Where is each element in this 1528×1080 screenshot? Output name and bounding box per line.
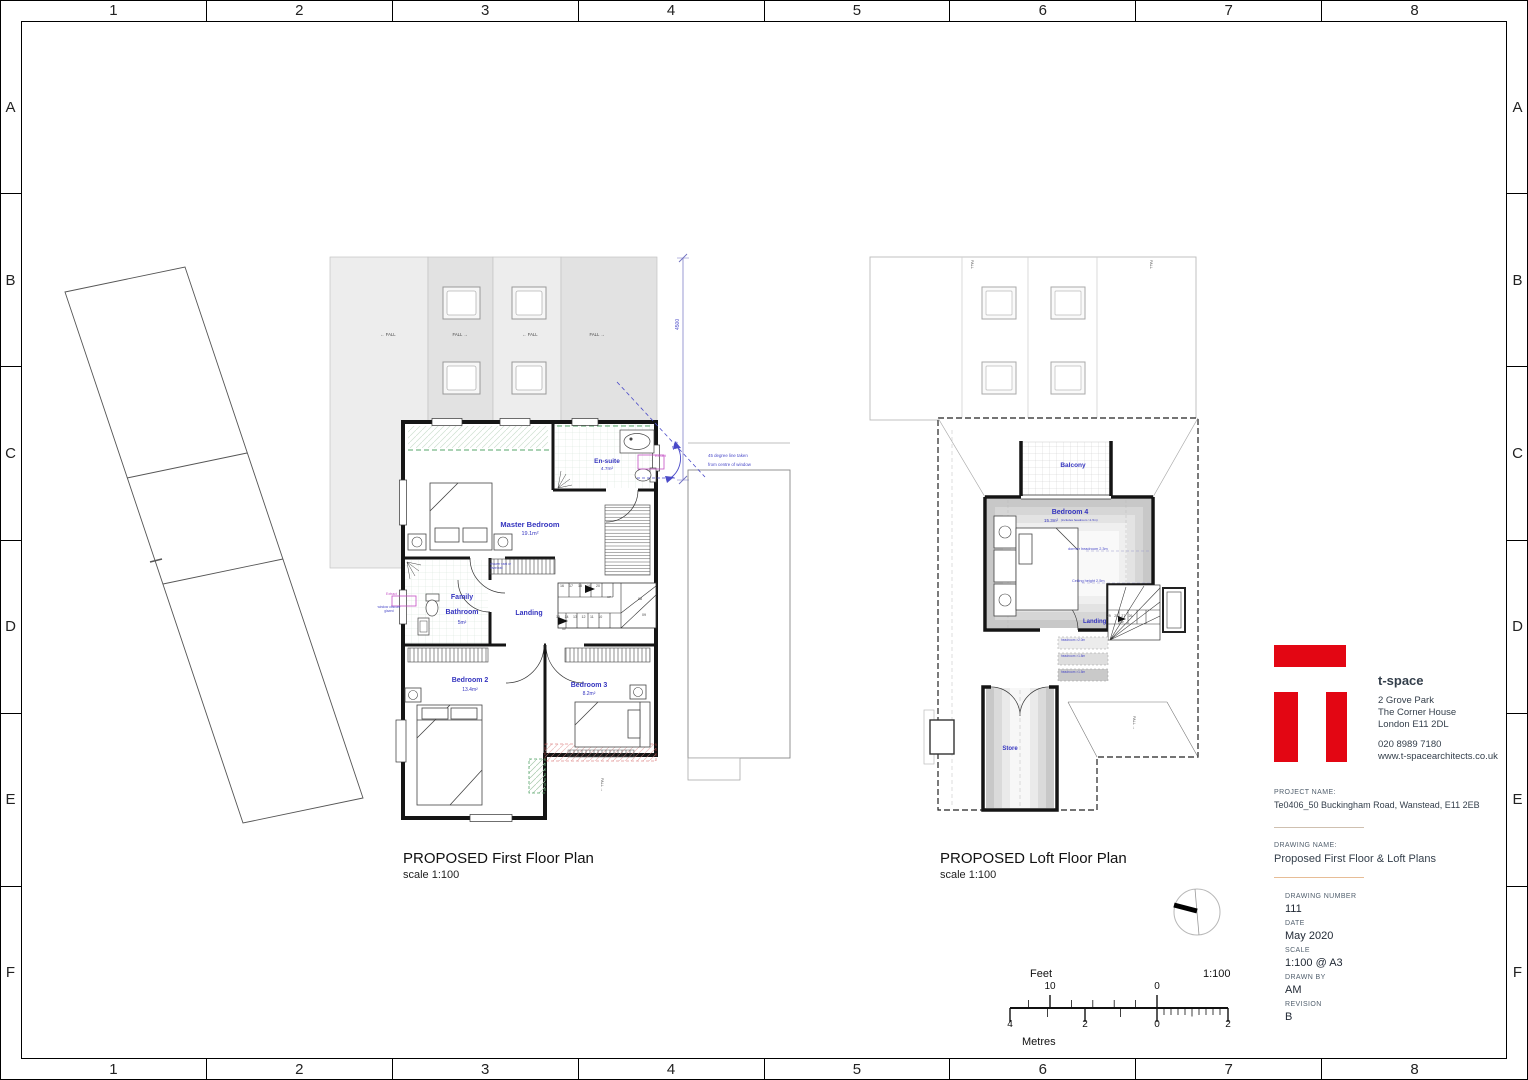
first-floor-plan-title: PROPOSED First Floor Plan: [403, 850, 594, 867]
drawing-number-label: DRAWING NUMBER: [1285, 893, 1356, 901]
room-label-bedroom3: Bedroom 3: [571, 682, 608, 690]
roof-fall-label: FALL →: [1132, 716, 1136, 730]
loft-plan-scale: scale 1:100: [940, 869, 996, 882]
grid-row-label: B: [0, 194, 21, 367]
stair-winder-number: 09: [642, 613, 646, 617]
grid-band-bottom: 1 2 3 4 5 6 7 8: [21, 1059, 1507, 1080]
dormer-headroom-note: dormer headroom 2.3m: [1068, 547, 1108, 551]
address-line: London E11 2DL: [1378, 720, 1449, 731]
revision-value: B: [1285, 1011, 1292, 1024]
grid-row-label: E: [1507, 714, 1528, 887]
grid-band-left: A B C D E F: [0, 21, 21, 1059]
roof-fall-label: ← FALL: [522, 333, 537, 338]
brand-name: t-space: [1378, 674, 1424, 689]
first-floor-plan-scale: scale 1:100: [403, 869, 459, 882]
chimney: [930, 720, 954, 754]
roof-fall-label: FALL →: [590, 333, 605, 338]
phone-number: 020 8989 7180: [1378, 740, 1441, 751]
drawn-by-label: DRAWN BY: [1285, 974, 1326, 982]
grid-row-label: A: [1507, 21, 1528, 194]
grid-row-label: A: [0, 21, 21, 194]
scalebar-m-4: 4: [1007, 1019, 1013, 1031]
grid-col-label: 6: [950, 1059, 1136, 1080]
room-label-balcony: Balcony: [1060, 462, 1085, 469]
scalebar-m-2l: 2: [1082, 1019, 1088, 1031]
angle-note-line1: 45 degree line taken: [708, 453, 748, 458]
grid-row-label: B: [1507, 194, 1528, 367]
roof-fall-label: FALL: [1149, 260, 1153, 269]
grid-col-label: 3: [393, 0, 579, 21]
scalebar-feet-label: Feet: [1030, 968, 1052, 981]
loft-plan-title: PROPOSED Loft Floor Plan: [940, 850, 1127, 867]
grid-col-label: 4: [579, 0, 765, 21]
project-name-value: Te0406_50 Buckingham Road, Wanstead, E11…: [1274, 800, 1480, 810]
stair-tread-numbers-lower: 15 14 13 12 11 10: [556, 615, 602, 619]
scale-label: SCALE: [1285, 947, 1310, 955]
headroom-note-2: headroom >1.8m: [1061, 655, 1085, 659]
grid-col-label: 6: [950, 0, 1136, 21]
loft-staircase: [1108, 585, 1160, 640]
room-area-master: 19.1m²: [521, 531, 538, 537]
grid-col-label: 3: [393, 1059, 579, 1080]
roof-fall-label: FALL →: [453, 333, 468, 338]
room-label-bedroom4: Bedroom 4: [1052, 509, 1089, 517]
extract-note: Extract: [386, 592, 397, 596]
loft-stair-tread-numbers: 29 28 27 26: [1107, 615, 1132, 619]
grid-col-label: 2: [207, 1059, 393, 1080]
loft-plan-drawing: [860, 250, 1210, 830]
grid-row-label: F: [0, 887, 21, 1059]
grid-col-label: 7: [1136, 0, 1322, 21]
dimension-text: 4500: [676, 319, 682, 330]
website-link[interactable]: www.t-spacearchitects.co.uk: [1378, 752, 1498, 763]
grid-col-label: 7: [1136, 1059, 1322, 1080]
north-point: [1170, 885, 1224, 939]
headroom-note-1: headroom >2.0m: [1061, 639, 1085, 643]
grid-row-label: E: [0, 714, 21, 887]
stair-up-label: UP: [1120, 621, 1124, 624]
date-label: DATE: [1285, 920, 1305, 928]
grid-col-label: 4: [579, 1059, 765, 1080]
divider: [1274, 877, 1364, 878]
angle-note-line2: from centre of window: [708, 462, 751, 467]
room-label-ensuite: En-suite: [594, 458, 620, 465]
grid-band-top: 1 2 3 4 5 6 7 8: [21, 0, 1507, 21]
extract-note: Extract: [655, 454, 666, 458]
divider: [1274, 827, 1364, 828]
stair-winder-number: 08: [638, 597, 642, 601]
roof-fall-label: FALL: [970, 260, 974, 269]
room-area-bedroom4: 15.3m²: [1044, 518, 1058, 523]
room-area-bedroom3: 8.2m²: [583, 692, 596, 698]
room-label-loft-landing: Landing: [1083, 619, 1106, 626]
revision-label: REVISION: [1285, 1001, 1322, 1009]
shower-note: shower seat or towel rail: [490, 563, 514, 570]
scale-value: 1:100 @ A3: [1285, 957, 1343, 970]
grid-row-label: D: [0, 541, 21, 714]
roof-fall-label: FALL →: [600, 778, 604, 792]
project-name-label: PROJECT NAME:: [1274, 789, 1336, 797]
loft-roof-outline: [870, 257, 1196, 420]
stair-tread-numbers-upper: 16 17 18 19 20: [560, 584, 600, 588]
ceiling-height-note: Ceiling height 2.5m: [1072, 579, 1105, 583]
room-label-master: Master Bedroom: [500, 521, 559, 530]
date-value: May 2020: [1285, 930, 1333, 943]
room-area-note-bedroom4: (includes headroom >1.5m): [1061, 519, 1098, 522]
grid-col-label: 5: [765, 0, 951, 21]
drawing-name-value: Proposed First Floor & Loft Plans: [1274, 853, 1436, 866]
scale-bar: [1000, 990, 1240, 1040]
room-label-store: Store: [1002, 746, 1017, 753]
roof-fall-label: ← FALL: [380, 333, 395, 338]
store-room: [983, 687, 1057, 810]
grid-col-label: 8: [1322, 0, 1507, 21]
scalebar-feet-10: 10: [1044, 981, 1055, 993]
address-line: The Corner House: [1378, 708, 1456, 719]
grid-row-label: F: [1507, 887, 1528, 1059]
room-label-landing: Landing: [515, 610, 542, 618]
drawn-by-value: AM: [1285, 984, 1302, 997]
room-area-bathroom: 5m²: [458, 621, 467, 627]
scalebar-ratio: 1:100: [1203, 968, 1231, 981]
drawing-name-label: DRAWING NAME:: [1274, 842, 1337, 850]
room-label-bedroom2: Bedroom 2: [452, 677, 489, 685]
drawing-number-value: 111: [1285, 903, 1302, 916]
headroom-note-3: headroom >1.5m: [1061, 671, 1085, 675]
grid-col-label: 1: [21, 1059, 207, 1080]
scalebar-m-0: 0: [1154, 1019, 1160, 1031]
staircase: [558, 583, 656, 628]
grid-col-label: 2: [207, 0, 393, 21]
grid-row-label: C: [0, 367, 21, 540]
address-line: 2 Grove Park: [1378, 696, 1434, 707]
stair-up-label: UP: [607, 596, 611, 599]
stair-up-label: UP: [562, 628, 566, 631]
grid-row-label: D: [1507, 541, 1528, 714]
drawing-sheet: 1 2 3 4 5 6 7 8 1 2 3 4 5 6 7 8 A B C D …: [0, 0, 1528, 1080]
right-neighbour-outline: [688, 443, 790, 780]
grid-col-label: 8: [1322, 1059, 1507, 1080]
scalebar-metres-label: Metres: [1022, 1036, 1056, 1049]
scalebar-feet-0: 0: [1154, 981, 1160, 993]
grid-col-label: 1: [21, 0, 207, 21]
room-area-bedroom2: 13.4m²: [462, 688, 478, 694]
room-area-ensuite: 4.7m²: [601, 467, 613, 473]
room-label-bathroom: Family Bathroom: [438, 591, 486, 620]
scalebar-m-2r: 2: [1225, 1019, 1231, 1031]
grid-band-right: A B C D E F: [1507, 21, 1528, 1059]
grid-col-label: 5: [765, 1059, 951, 1080]
grid-row-label: C: [1507, 367, 1528, 540]
loft-furniture: [994, 516, 1078, 616]
obscure-glazing-note: window obscure glazed: [374, 606, 404, 613]
